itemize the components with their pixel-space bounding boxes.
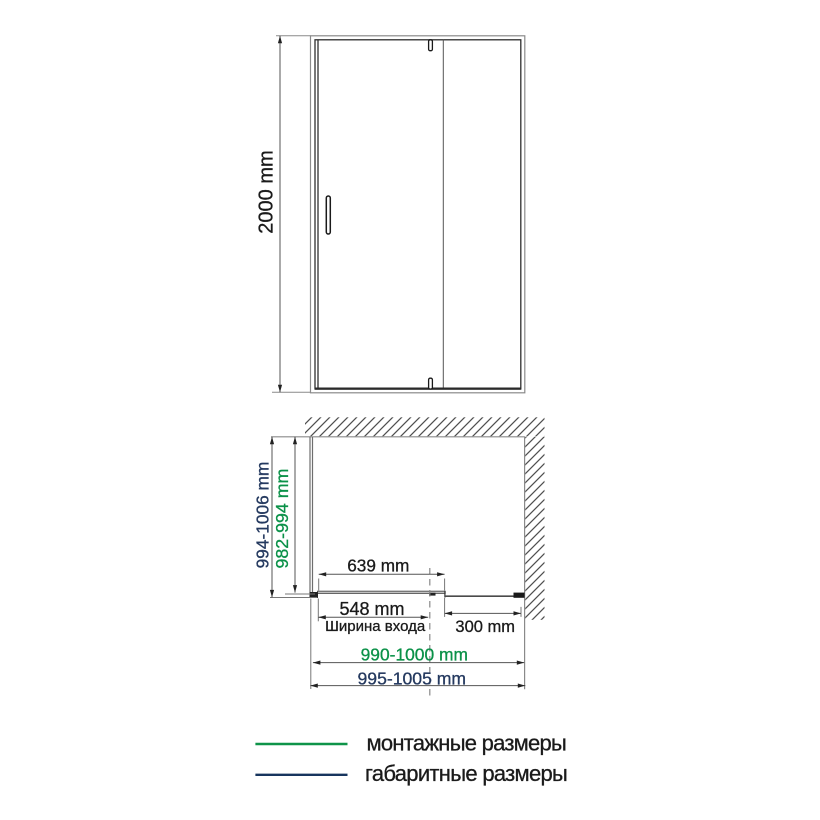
svg-text:990-1000 mm: 990-1000 mm	[361, 645, 468, 665]
svg-text:габаритные размеры: габаритные размеры	[365, 761, 567, 786]
svg-text:995-1005 mm: 995-1005 mm	[358, 668, 467, 688]
svg-text:548 mm: 548 mm	[339, 599, 404, 619]
svg-text:монтажные размеры: монтажные размеры	[367, 730, 567, 755]
svg-text:982-994 mm: 982-994 mm	[272, 469, 292, 569]
svg-text:Ширина входа: Ширина входа	[325, 618, 426, 635]
svg-text:639 mm: 639 mm	[347, 555, 409, 575]
svg-text:994-1006 mm: 994-1006 mm	[253, 462, 273, 569]
svg-text:300 mm: 300 mm	[455, 618, 515, 636]
svg-text:2000 mm: 2000 mm	[256, 150, 278, 233]
